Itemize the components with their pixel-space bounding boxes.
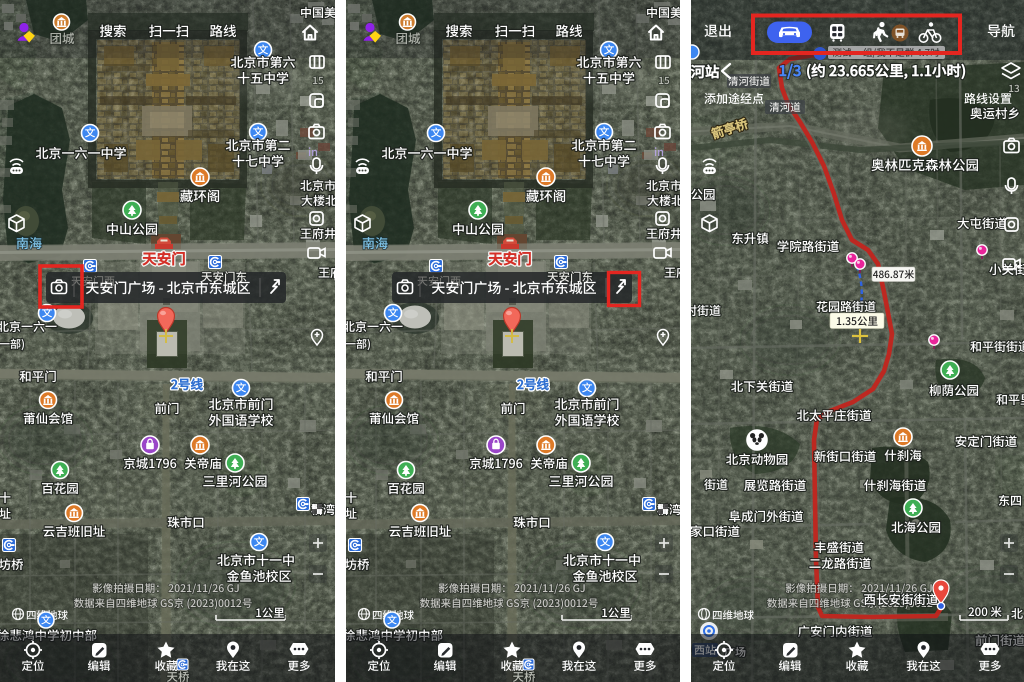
svg-text:大屯街道: 大屯街道: [957, 213, 1008, 232]
svg-text:添加途经点: 添加途经点: [704, 90, 764, 107]
svg-text:花园路街道: 花园路街道: [816, 298, 876, 315]
svg-text:街道: 街道: [704, 476, 728, 493]
svg-text:导航: 导航: [987, 21, 1015, 41]
svg-text:村街道: 村街道: [685, 302, 721, 319]
svg-text:1/3: 1/3: [779, 60, 802, 81]
svg-text:什刹海街道: 什刹海街道: [864, 475, 927, 494]
svg-text:和平里: 和平里: [996, 391, 1024, 408]
svg-text:更多: 更多: [979, 658, 1002, 674]
svg-text:展览路街道: 展览路街道: [744, 475, 807, 494]
svg-text:东升镇: 东升镇: [731, 228, 769, 247]
svg-text:北: 北: [1011, 605, 1023, 622]
svg-text:收藏: 收藏: [846, 658, 869, 674]
svg-text:200 米: 200 米: [968, 604, 1002, 620]
svg-text:我在这: 我在这: [906, 658, 941, 674]
svg-text:(约 23.665公里, 1.1小时): (约 23.665公里, 1.1小时): [806, 60, 966, 81]
svg-text:安定门街道: 安定门街道: [955, 431, 1018, 450]
svg-text:清河道: 清河道: [769, 100, 801, 115]
svg-text:定位: 定位: [713, 658, 736, 674]
svg-text:编辑: 编辑: [779, 658, 802, 674]
svg-text:河站: 河站: [690, 61, 720, 82]
svg-text:什刹海: 什刹海: [884, 445, 922, 464]
svg-text:公园: 公园: [690, 184, 715, 203]
svg-text:学院路街道: 学院路街道: [777, 236, 840, 255]
svg-text:家口街道: 家口街道: [690, 521, 741, 540]
svg-text:和平街街道: 和平街街道: [970, 338, 1024, 355]
svg-text:东四: 东四: [998, 492, 1022, 509]
svg-text:北京动物园: 北京动物园: [726, 449, 789, 468]
svg-text:清河街道: 清河街道: [728, 74, 770, 89]
svg-text:486.87米: 486.87米: [873, 266, 914, 281]
svg-text:北太平庄街道: 北太平庄街道: [796, 405, 872, 424]
svg-text:1.35公里: 1.35公里: [836, 314, 878, 329]
svg-text:奥林匹克森林公园: 奥林匹克森林公园: [871, 154, 979, 174]
svg-text:四维地球: 四维地球: [712, 608, 754, 623]
svg-text:退出: 退出: [704, 21, 732, 41]
svg-text:新街口街道: 新街口街道: [814, 446, 877, 465]
svg-text:北下关街道: 北下关街道: [731, 376, 794, 395]
svg-text:北海公园: 北海公园: [891, 517, 941, 536]
svg-text:柳荫公园: 柳荫公园: [929, 380, 979, 399]
svg-text:路线设置: 路线设置: [964, 90, 1012, 107]
svg-text:二龙路街道: 二龙路街道: [809, 553, 872, 572]
svg-text:西长安街街道: 西长安街街道: [863, 589, 939, 608]
